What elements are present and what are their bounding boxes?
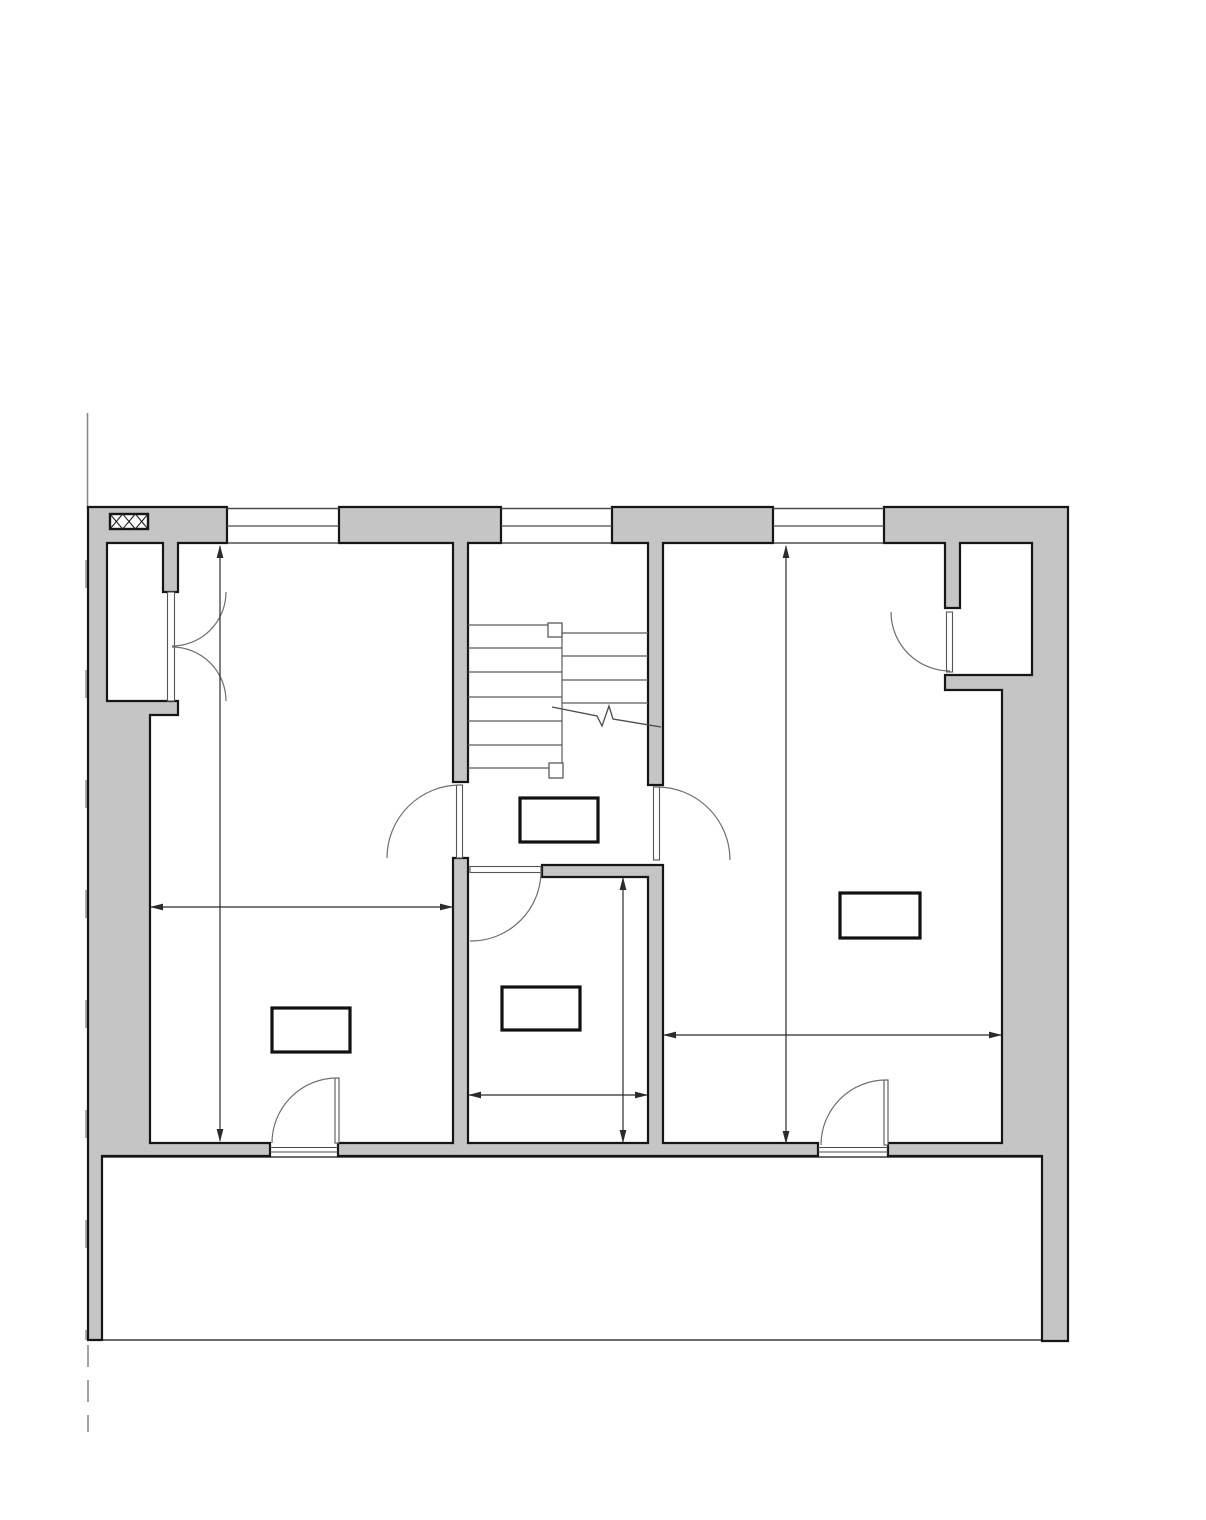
floor-plan-page <box>0 0 1206 1520</box>
dimension-arrowhead <box>989 1032 1002 1039</box>
leaf-hall-right <box>654 787 660 860</box>
dimension-arrowhead <box>150 904 163 911</box>
dimension-arrowhead <box>217 1129 224 1142</box>
dimension-arrowhead <box>620 1130 627 1143</box>
dimension-arrowhead <box>663 1032 676 1039</box>
label-box-hall <box>520 798 598 842</box>
double-door-left-closet-bottom <box>172 647 226 701</box>
leaf-right-room-south <box>884 1080 888 1145</box>
dimensions-layer <box>150 545 1002 1144</box>
leaf-center-room <box>470 867 541 873</box>
wall-pier-stair-left <box>339 507 501 782</box>
door-hall-to-right-room <box>657 787 730 860</box>
dimension-arrowhead <box>217 545 224 558</box>
wall-left-complex <box>88 507 270 1340</box>
dimension-arrowhead <box>783 545 790 558</box>
terrace-layer <box>88 1157 1042 1340</box>
door-center-room <box>470 871 541 941</box>
dimension-arrowhead <box>635 1092 648 1099</box>
leaf-left-room-south <box>335 1078 339 1143</box>
chimney-layer <box>110 514 148 529</box>
label-box-center-room <box>502 987 580 1030</box>
leaf-hall-left <box>457 785 463 858</box>
dimension-arrowhead <box>440 904 453 911</box>
leaf-right-closet <box>947 612 953 672</box>
stair-newel-post <box>549 763 563 778</box>
dimension-arrowhead <box>620 877 627 890</box>
door-hall-to-left-room <box>387 785 460 858</box>
door-right-room-south <box>821 1080 886 1145</box>
stair-break-line <box>552 706 661 727</box>
wall-pier-stair-right <box>612 507 773 785</box>
label-box-right-room <box>840 893 920 938</box>
label-boxes-layer <box>272 798 920 1052</box>
door-left-room-south <box>272 1078 337 1143</box>
stair-newel-post <box>548 623 562 637</box>
label-box-left-room <box>272 1008 350 1052</box>
dimension-arrowhead <box>468 1092 481 1099</box>
windows-layer <box>227 509 884 544</box>
floor-plan-drawing <box>0 0 1206 1520</box>
double-door-left-closet-top <box>172 592 226 646</box>
door-right-closet <box>891 612 950 671</box>
stairs-layer <box>468 623 661 778</box>
